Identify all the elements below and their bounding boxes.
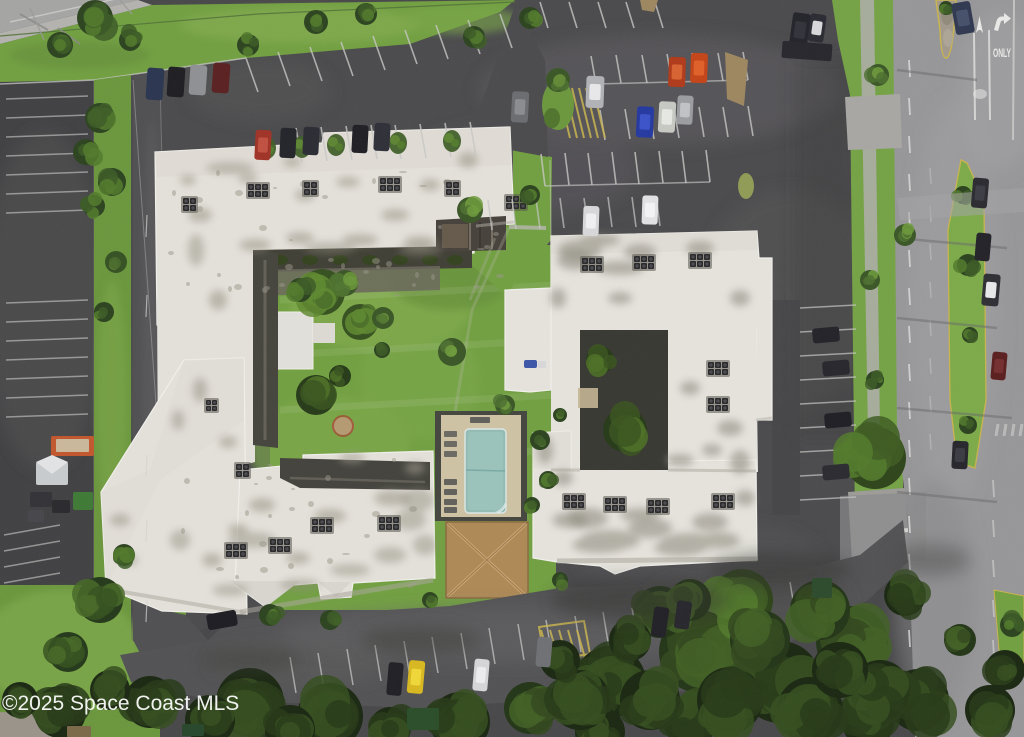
svg-text:©2025 Space Coast MLS: ©2025 Space Coast MLS — [2, 692, 239, 715]
